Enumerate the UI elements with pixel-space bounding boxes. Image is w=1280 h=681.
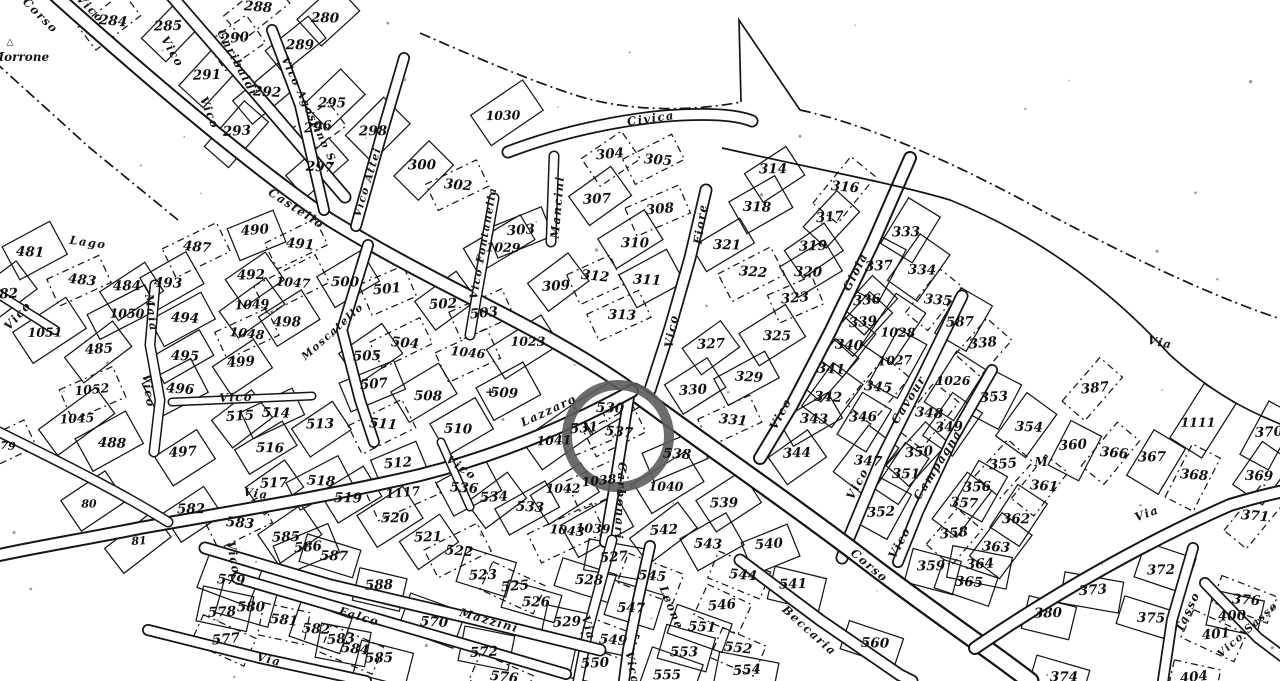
street-corridor (605, 390, 630, 542)
scan-speck (1249, 80, 1252, 83)
scan-speck (1271, 646, 1274, 649)
scan-speck (1161, 389, 1163, 391)
scan-speck (365, 138, 366, 139)
scan-speck (1156, 250, 1159, 253)
parcel-boundary (803, 191, 859, 248)
parcel-boundary (466, 472, 526, 528)
parcel-boundary (718, 247, 785, 302)
parcel-boundary (227, 210, 286, 260)
scan-speck (969, 421, 971, 423)
scan-speck (1139, 504, 1142, 507)
parcel-boundary (657, 624, 715, 671)
scan-speck (1024, 108, 1026, 110)
parcel-boundary (947, 546, 1013, 589)
cadastral-map: 2842852882802902892912922952962982932973… (0, 0, 1280, 681)
scan-speck (1101, 563, 1103, 565)
parcel-boundary (155, 430, 216, 486)
parcel-boundary (75, 411, 143, 471)
street-corridor (842, 296, 962, 558)
parcel-boundary (862, 293, 926, 364)
parcel-boundary (887, 234, 949, 301)
scan-speck (672, 502, 674, 504)
scan-speck (277, 446, 279, 448)
parcel-boundary (1240, 401, 1280, 470)
parcel-boundary (598, 210, 663, 269)
scan-speck (535, 221, 537, 223)
street-corridor (356, 58, 404, 226)
scan-speck (760, 193, 763, 196)
scan-speck (13, 531, 16, 534)
parcel-boundary (1081, 422, 1139, 484)
scan-speck (820, 221, 823, 224)
street-corridor (205, 548, 600, 650)
parcel-boundary (714, 652, 779, 681)
scan-speck (1046, 674, 1048, 676)
parcel-boundary (1165, 444, 1220, 511)
scan-speck (502, 418, 505, 421)
street-corridors (0, 0, 1280, 681)
parcel-boundary (975, 439, 1033, 498)
scan-speck (386, 22, 389, 25)
street-corridor (650, 190, 706, 390)
scan-speck (876, 590, 877, 591)
scan-speck (931, 278, 933, 280)
parcel-boundary (1127, 430, 1186, 494)
parcel-boundary (471, 80, 544, 146)
scan-speck (255, 561, 257, 563)
parcel-boundary (359, 266, 417, 316)
scan-speck (595, 248, 598, 251)
map-canvas (0, 0, 1280, 681)
scan-speck (1194, 191, 1197, 194)
scan-speck (459, 447, 461, 449)
parcel-boundary (297, 0, 360, 46)
scan-speck (1068, 80, 1069, 81)
scan-speck (162, 49, 164, 51)
parcel-boundary (739, 304, 806, 365)
parcel-boundary (1062, 358, 1122, 421)
scan-speck (29, 588, 32, 591)
parcel-boundary (424, 523, 491, 578)
scan-speck (897, 474, 900, 477)
boundary-lines (0, 20, 1280, 428)
scan-speck (480, 533, 483, 536)
parcel-boundary (784, 223, 843, 278)
scan-speck (766, 333, 768, 335)
scan-speck (557, 106, 559, 108)
scan-speck (63, 391, 64, 392)
scan-speck (991, 306, 992, 307)
scan-speck (85, 477, 86, 478)
parcel-boundary (569, 166, 632, 225)
scan-speck (705, 304, 708, 307)
parcel-boundary (476, 362, 541, 420)
street-corridor (551, 156, 554, 242)
parcel-boundary (47, 255, 111, 306)
parcel-boundary (258, 505, 322, 565)
parcel-boundary (630, 502, 698, 564)
parcel-boundary (528, 253, 589, 311)
scan-speck (574, 364, 576, 366)
parcel-boundary (623, 134, 685, 184)
parcel-boundary (39, 387, 115, 455)
scan-speck (233, 676, 235, 678)
scan-speck (331, 334, 334, 337)
boundary-line (420, 33, 741, 109)
scan-speck (183, 136, 185, 138)
street-corridor (578, 540, 612, 681)
parcel-boundary (640, 647, 703, 681)
boundary-line (800, 110, 1280, 322)
scan-speck (1216, 278, 1218, 280)
parcel-boundary (729, 176, 793, 234)
boundary-line (739, 20, 800, 110)
scan-speck (310, 248, 313, 251)
parcel-boundary (780, 240, 843, 297)
parcel-boundary (767, 276, 823, 323)
parcel-boundary (304, 69, 365, 130)
scan-speck (200, 193, 201, 194)
parcel-boundary (394, 141, 453, 200)
scan-speck (370, 276, 372, 278)
scan-speck (1123, 448, 1125, 450)
scan-speck (799, 135, 802, 138)
parcel-boundary (426, 160, 489, 211)
scan-speck (651, 617, 653, 619)
parcel-boundary (254, 255, 330, 314)
parcel-boundary (970, 513, 1032, 579)
scan-speck (140, 164, 142, 166)
parcel-boundary (934, 560, 998, 607)
parcel-boundary (259, 290, 320, 346)
street-corridor (148, 630, 366, 681)
parcel-boundary (1167, 660, 1220, 681)
scan-speck (629, 51, 631, 53)
parcel-boundary (291, 401, 351, 457)
parcel-boundary (257, 603, 310, 645)
parcel-boundary (456, 547, 516, 597)
parcel-boundary (495, 481, 560, 535)
street-corridor (634, 392, 1030, 681)
parcel-boundary (225, 252, 284, 307)
parcel-boundary (150, 292, 215, 346)
parcel-boundary (813, 157, 876, 224)
street-corridor (1205, 583, 1280, 662)
scan-speck (727, 391, 729, 393)
parcel-boundary (399, 514, 458, 569)
parcel-boundary (625, 185, 691, 236)
parcel-boundary (59, 367, 126, 421)
parcel-boundary (65, 321, 132, 383)
scan-speck (425, 644, 428, 647)
parcel-boundary (581, 131, 640, 186)
street-corridor (0, 391, 632, 556)
parcel-boundary (1170, 384, 1236, 458)
parcel-boundary (996, 393, 1057, 458)
scan-speck (403, 78, 406, 81)
scan-speck (106, 361, 109, 364)
parcel-boundary (501, 580, 562, 622)
street-corridor (975, 490, 1280, 648)
scan-speck (854, 24, 855, 25)
scan-speck (216, 619, 219, 622)
parcel-boundary (2, 221, 67, 280)
street-corridor (624, 546, 650, 681)
parcel-boundary (587, 290, 651, 341)
parcel-boundary (682, 321, 739, 375)
scan-speck (46, 334, 48, 336)
parcel-boundary (265, 219, 328, 269)
parcel-boundary (235, 421, 297, 474)
